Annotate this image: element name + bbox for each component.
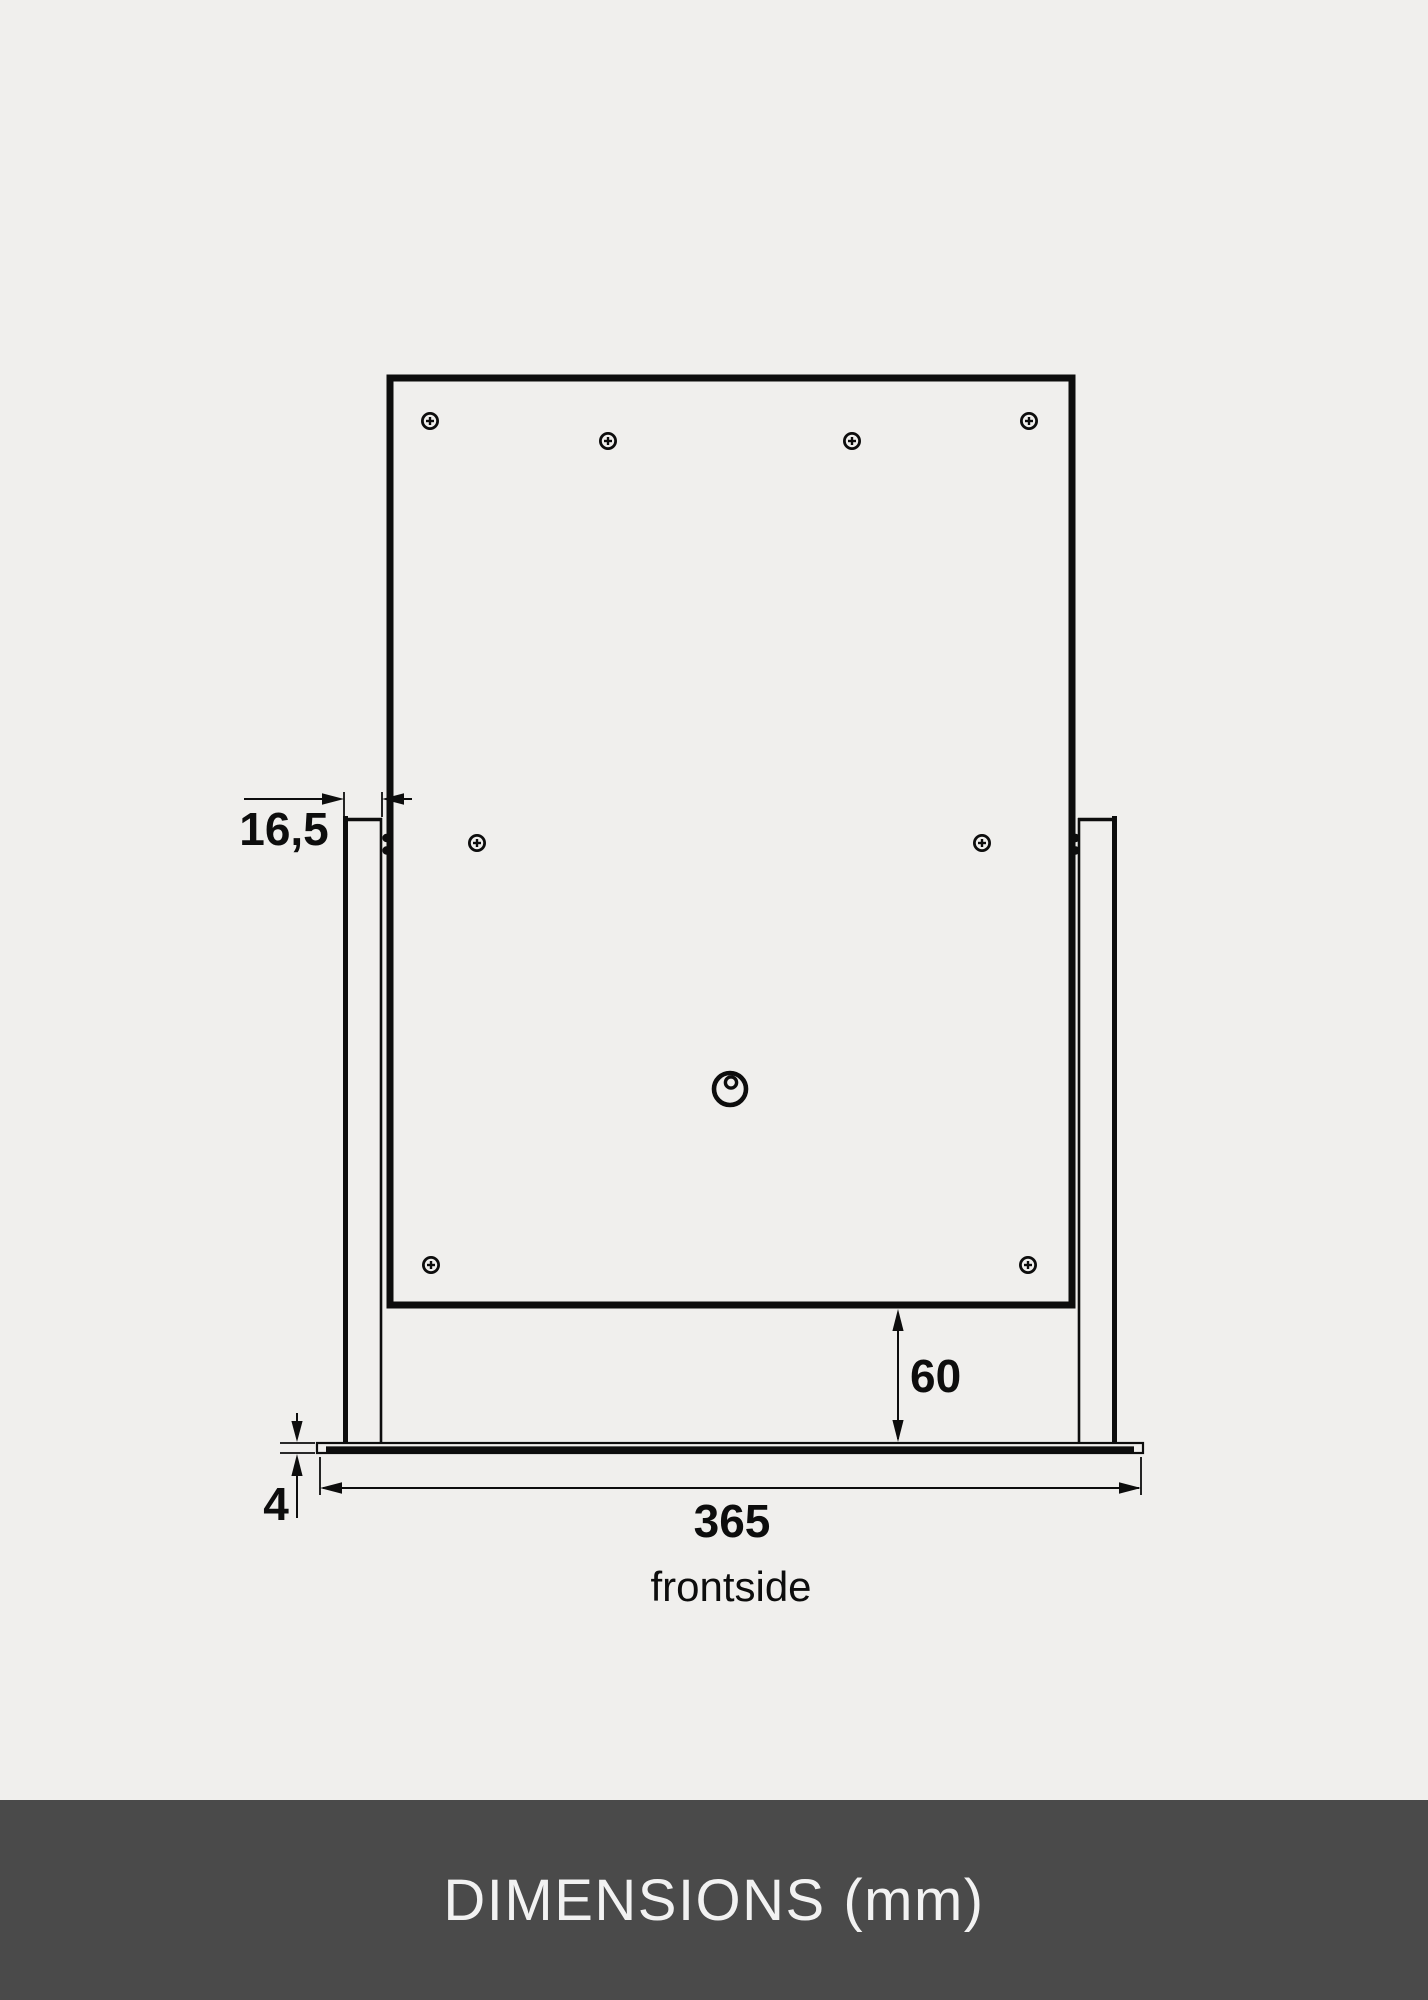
screw-icon (1020, 1257, 1035, 1272)
technical-drawing: 16,5 60 4 (0, 0, 1428, 1800)
screw-holes (422, 413, 1036, 1272)
screw-icon (469, 835, 484, 850)
dim-label-leg-thickness: 16,5 (239, 803, 329, 855)
screw-icon (422, 413, 437, 428)
base-plate (317, 1443, 1143, 1453)
stand-leg-right (1078, 816, 1117, 1443)
screw-icon (423, 1257, 438, 1272)
screw-icon (974, 835, 989, 850)
view-label: frontside (650, 1563, 811, 1610)
screw-icon (844, 433, 859, 448)
footer-title: DIMENSIONS (mm) (443, 1867, 984, 1934)
footer-bar: DIMENSIONS (mm) (0, 1800, 1428, 2000)
dimension-panel-to-base: 60 (892, 1309, 961, 1442)
dimension-sheet: 16,5 60 4 (0, 0, 1428, 2000)
back-panel (390, 378, 1072, 1305)
dimension-plate-thickness: 4 (263, 1413, 315, 1530)
dim-label-panel-to-base: 60 (910, 1350, 961, 1402)
stand-leg-left (343, 816, 382, 1443)
screw-icon (600, 433, 615, 448)
dimension-leg-thickness: 16,5 (239, 792, 412, 855)
dim-label-plate-thickness: 4 (263, 1478, 289, 1530)
dimension-base-width: 365 (320, 1457, 1141, 1547)
dim-label-base-width: 365 (694, 1495, 771, 1547)
screw-icon (1021, 413, 1036, 428)
keyhole-hanger-icon (714, 1073, 746, 1105)
